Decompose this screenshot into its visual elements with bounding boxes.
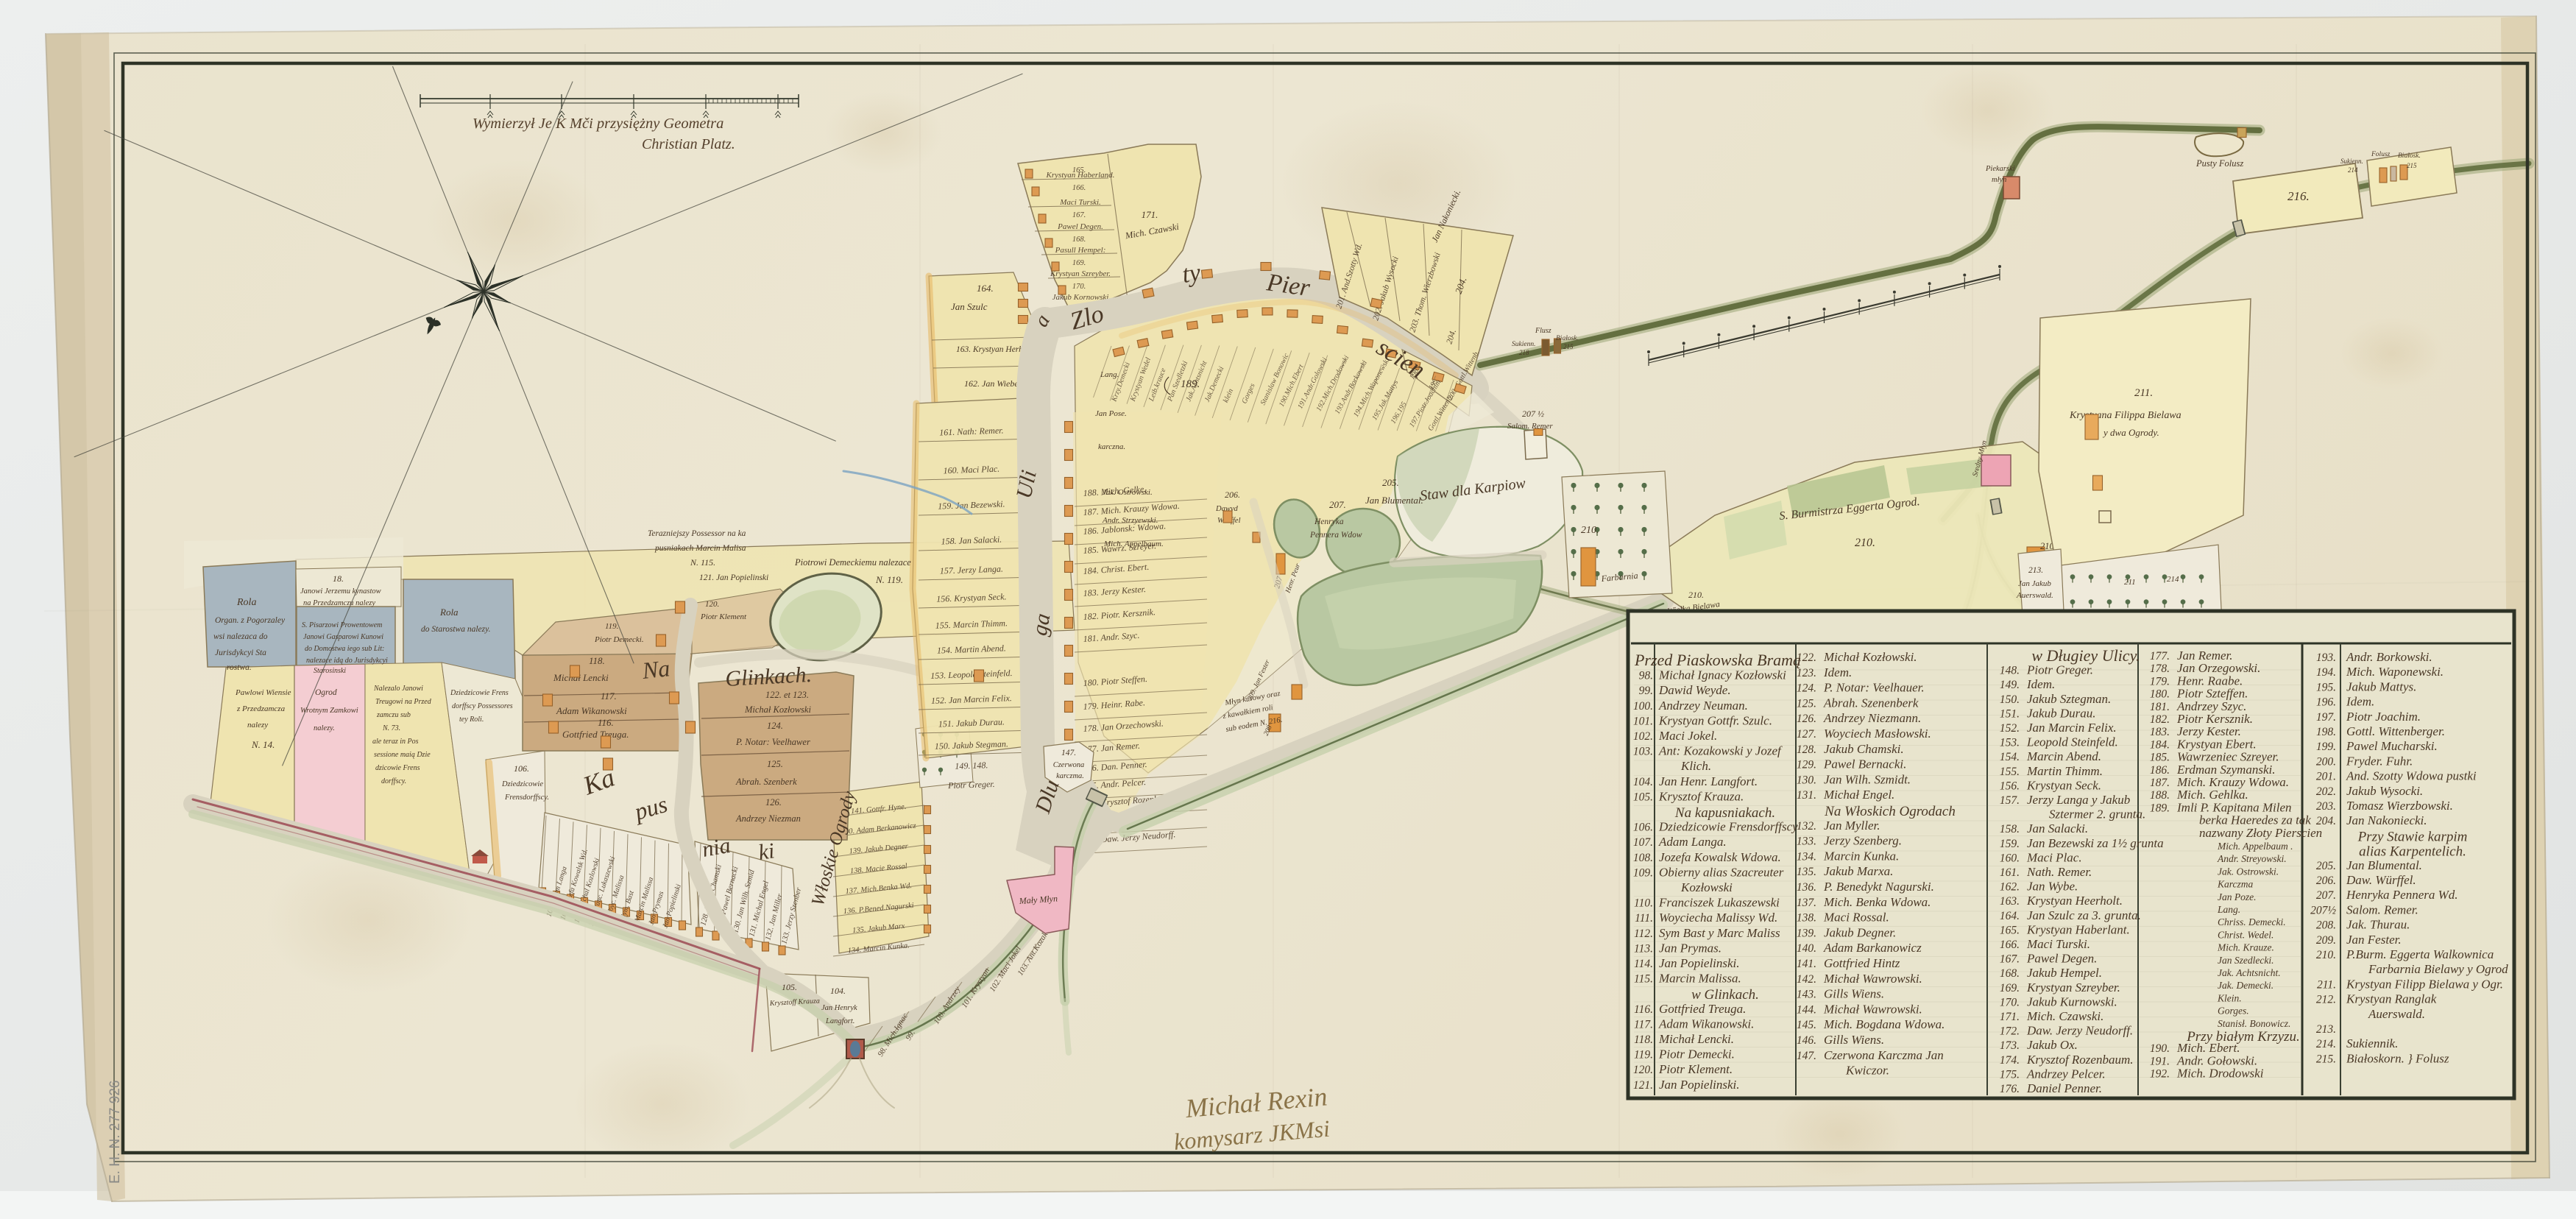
svg-text:N. 14.: N. 14. [251,739,275,750]
svg-text:Michał Kozłowski.: Michał Kozłowski. [1823,650,1917,664]
svg-text:211.: 211. [2317,978,2336,991]
svg-text:125.: 125. [767,759,783,769]
svg-text:Pasull Hempel:: Pasull Hempel: [1055,246,1106,255]
svg-text:Terazniejszy Possessor na ka: Terazniejszy Possessor na ka [648,529,746,538]
svg-text:Idem.: Idem. [2026,677,2055,691]
svg-text:137.: 137. [1797,897,1816,909]
svg-text:Białosk.: Białosk. [2398,152,2421,160]
svg-text:98.: 98. [1639,670,1653,682]
svg-text:200.: 200. [2316,755,2336,768]
svg-text:Jakub Hempel.: Jakub Hempel. [2027,966,2102,980]
svg-text:P. Benedykt Nagurski.: P. Benedykt Nagurski. [1823,880,1934,894]
svg-text:129.: 129. [1797,759,1816,771]
svg-text:136.: 136. [1797,881,1816,894]
svg-text:Wymierzył Je K Mči przysiężny: Wymierzył Je K Mči przysiężny Geometra [473,116,723,132]
svg-text:154.: 154. [2000,751,2020,763]
svg-text:123.: 123. [1797,667,1816,679]
svg-text:146.: 146. [1797,1034,1816,1047]
svg-text:Henr. Raabe.: Henr. Raabe. [2176,674,2243,688]
svg-text:153.: 153. [2000,737,2020,749]
svg-text:Sukienn.: Sukienn. [1512,341,1535,348]
svg-text:218: 218 [1519,349,1529,356]
svg-text:Marcin Abend.: Marcin Abend. [2026,749,2101,763]
svg-text:Dziedzicowie Frens: Dziedzicowie Frens [450,689,509,697]
svg-text:Mich. Gehlka.: Mich. Gehlka. [2176,788,2248,802]
svg-text:Jan Bezewski za 1½ grunta: Jan Bezewski za 1½ grunta [2027,836,2164,850]
svg-text:118.: 118. [1634,1033,1653,1046]
svg-text:Tomasz Wierzbowski.: Tomasz Wierzbowski. [2346,799,2453,813]
svg-text:Sztermer 2. grunta.: Sztermer 2. grunta. [2049,808,2145,821]
svg-text:205.: 205. [2316,860,2336,872]
svg-text:198.: 198. [2316,726,2336,738]
svg-text:104.: 104. [1633,776,1653,788]
svg-text:Maci Rossal.: Maci Rossal. [1823,911,1889,925]
svg-text:Jan Szedlecki.: Jan Szedlecki. [2218,955,2274,966]
svg-text:Jan Fester.: Jan Fester. [2346,933,2402,947]
svg-text:206.: 206. [2316,875,2336,887]
svg-text:Michał Lencki: Michał Lencki [553,672,609,683]
svg-text:Kwiczor.: Kwiczor. [1845,1064,1889,1078]
svg-text:Gills Wiens.: Gills Wiens. [1824,1033,1884,1047]
svg-text:155.: 155. [2000,766,2020,778]
svg-text:160.: 160. [2000,852,2020,864]
svg-text:Flusz: Flusz [1535,327,1551,335]
svg-text:Jan Wybe.: Jan Wybe. [2027,880,2078,894]
svg-text:106.: 106. [514,763,529,774]
svg-text:dorffscy.: dorffscy. [381,777,406,785]
svg-text:Erdman Szymanski.: Erdman Szymanski. [2176,763,2275,777]
svg-text:Andrzey Pelcer.: Andrzey Pelcer. [2026,1067,2106,1081]
svg-text:201.: 201. [2316,771,2336,783]
svg-text:Piotr Greger.: Piotr Greger. [947,779,995,791]
svg-text:169.: 169. [2000,982,2020,994]
svg-text:188.: 188. [2150,789,2170,802]
svg-text:Mich. Drodowski: Mich. Drodowski [2176,1067,2264,1081]
svg-text:Michał Wawrowski.: Michał Wawrowski. [1823,972,1922,986]
svg-text:215: 215 [2407,162,2417,169]
svg-text:157.: 157. [2000,794,2020,807]
svg-text:nalezy.: nalezy. [314,724,335,732]
svg-text:Michał Engel.: Michał Engel. [1823,788,1894,802]
svg-text:157. Jerzy Langa.: 157. Jerzy Langa. [940,564,1003,576]
svg-text:Mich. Krauze.: Mich. Krauze. [2217,942,2274,953]
svg-text:Pawel Mucharski.: Pawel Mucharski. [2346,739,2438,753]
svg-text:nia: nia [700,833,732,862]
svg-text:151.: 151. [2000,707,2020,720]
svg-text:126.: 126. [1797,713,1816,725]
svg-text:Andr. Gołowski.: Andr. Gołowski. [2176,1053,2257,1067]
svg-text:Treugowi na Przed: Treugowi na Przed [375,698,432,706]
svg-text:119.: 119. [605,622,618,631]
svg-text:121.: 121. [1633,1079,1653,1092]
svg-text:N. 119.: N. 119. [875,574,903,585]
svg-text:144.: 144. [1797,1003,1816,1016]
svg-text:Starosinski: Starosinski [314,667,346,675]
svg-text:102.: 102. [1633,730,1653,743]
svg-text:Na kapusniakach.: Na kapusniakach. [1674,805,1775,821]
svg-text:Piotr Greger.: Piotr Greger. [2026,663,2093,677]
svg-text:172.: 172. [2000,1025,2020,1038]
svg-text:Idem.: Idem. [2346,695,2374,709]
svg-text:Michał Lencki.: Michał Lencki. [1658,1032,1734,1046]
svg-text:Jan Prymas.: Jan Prymas. [1659,941,1722,955]
svg-text:Sym Bast y Marc Maliss: Sym Bast y Marc Maliss [1659,926,1780,940]
svg-text:159.: 159. [2000,838,2020,850]
svg-text:karczna.: karczna. [1098,442,1125,451]
svg-text:Jan Popielinski.: Jan Popielinski. [1659,956,1740,970]
svg-text:Gorges.: Gorges. [2218,1006,2249,1017]
svg-text:Jan Myller.: Jan Myller. [1824,819,1880,833]
svg-text:208.: 208. [2316,919,2336,932]
svg-text:do Domostwa iego sub Lit:: do Domostwa iego sub Lit: [305,645,384,653]
svg-text:213.: 213. [2316,1023,2336,1036]
svg-text:Andr. Borkowski.: Andr. Borkowski. [2346,650,2432,664]
svg-text:Piotr Klement: Piotr Klement [700,612,747,621]
svg-text:Dziedzicowie Frensdorffscy: Dziedzicowie Frensdorffscy [1658,820,1798,834]
svg-text:ki: ki [757,838,776,865]
svg-text:164.: 164. [2000,910,2020,922]
svg-text:Glinkach.: Glinkach. [725,662,813,691]
svg-text:179.: 179. [2150,675,2170,688]
svg-text:205.: 205. [1382,477,1399,488]
svg-text:Przed Piaskowska Bramą: Przed Piaskowska Bramą [1634,651,1801,669]
svg-text:207.: 207. [1329,499,1346,510]
svg-text:197.: 197. [2316,711,2336,724]
svg-text:Jurisdykcyi Sta: Jurisdykcyi Sta [215,649,266,657]
svg-text:Salom. Remer: Salom. Remer [1507,422,1553,431]
svg-text:Piotr Demecki.: Piotr Demecki. [1658,1047,1735,1061]
svg-text:Piotr Joachim.: Piotr Joachim. [2346,710,2421,724]
svg-text:142.: 142. [1797,973,1816,986]
svg-text:Mich. Krauzy Wdowa.: Mich. Krauzy Wdowa. [2176,775,2289,789]
svg-text:Mich. Bogdana Wdowa.: Mich. Bogdana Wdowa. [1823,1017,1945,1031]
svg-text:pusniakach Marcin Malisa: pusniakach Marcin Malisa [654,544,746,553]
svg-text:y dwa Ogrody.: y dwa Ogrody. [2102,427,2159,438]
svg-text:160. Maci Plac.: 160. Maci Plac. [943,464,999,476]
svg-text:Frensdorffscy.: Frensdorffscy. [504,794,549,802]
svg-text:158.: 158. [2000,823,2020,835]
svg-text:Fryder. Fuhr.: Fryder. Fuhr. [2346,754,2413,768]
svg-text:Jan Pose.: Jan Pose. [1095,409,1127,418]
svg-text:210.: 210. [1855,537,1875,549]
svg-text:213.: 213. [2028,566,2043,575]
svg-text:Andr. Streyowski.: Andr. Streyowski. [2217,853,2287,864]
svg-text:121. Jan Popielinski: 121. Jan Popielinski [699,573,768,582]
svg-text:Mich. Benka Wdowa.: Mich. Benka Wdowa. [1823,895,1931,909]
svg-text:210.: 210. [1581,525,1599,536]
svg-text:Salom. Remer.: Salom. Remer. [2346,902,2418,916]
svg-text:Jan Orzegowski.: Jan Orzegowski. [2177,661,2260,675]
svg-text:149.: 149. [2000,679,2020,691]
svg-text:P. Notar: Veelhauer.: P. Notar: Veelhauer. [1823,681,1925,695]
svg-text:131.: 131. [1797,789,1816,802]
svg-text:Jerzy Szenberg.: Jerzy Szenberg. [1824,834,1902,848]
svg-text:E. H. N. 277 926: E. H. N. 277 926 [107,1081,123,1184]
svg-text:103.: 103. [1633,746,1653,758]
svg-text:119.: 119. [1634,1049,1653,1061]
svg-text:Kozłowski: Kozłowski [1680,880,1733,894]
svg-text:108.: 108. [1633,852,1653,864]
svg-text:Jan Szulc za 3. grunta.: Jan Szulc za 3. grunta. [2027,908,2141,922]
svg-text:199.: 199. [2316,741,2336,753]
svg-text:Ogrod: Ogrod [315,688,337,697]
svg-text:112.: 112. [1634,928,1653,940]
svg-text:111.: 111. [1635,912,1653,925]
svg-text:dzicowie Frens: dzicowie Frens [375,764,420,772]
svg-text:Rola: Rola [439,607,459,618]
svg-text:Jan Salacki.: Jan Salacki. [2027,821,2088,835]
svg-text:Krystyan Heerholt.: Krystyan Heerholt. [2026,894,2123,908]
svg-text:Sukienn.: Sukienn. [2340,158,2363,165]
svg-text:124.: 124. [767,721,783,731]
svg-text:Nalezalo Janowi: Nalezalo Janowi [373,685,423,693]
svg-text:Jak. Ostrowski.: Jak. Ostrowski. [2218,866,2279,877]
svg-text:Jan Nakoniecki.: Jan Nakoniecki. [2346,813,2427,827]
svg-text:168.: 168. [2000,967,2020,980]
svg-text:Krysztof Krauza.: Krysztof Krauza. [1658,789,1744,803]
svg-text:do Starostwa nalezy.: do Starostwa nalezy. [421,625,490,634]
svg-text:216.: 216. [2287,189,2310,203]
svg-text:Jakub Wysocki.: Jakub Wysocki. [2346,784,2423,798]
svg-text:163.: 163. [2000,895,2020,908]
svg-text:karczma.: karczma. [1056,772,1084,780]
svg-text:211: 211 [2124,578,2136,587]
svg-text:128.: 128. [1797,743,1816,756]
svg-text:207.: 207. [2316,889,2336,902]
svg-text:Jan Henr. Langfort.: Jan Henr. Langfort. [1659,774,1758,788]
svg-text:105.: 105. [1633,791,1653,803]
svg-text:215.: 215. [2316,1053,2336,1065]
svg-text:Jerzy Kester.: Jerzy Kester. [2177,724,2241,738]
svg-text:110.: 110. [1634,897,1653,910]
svg-text:Białoskorn. } Folusz: Białoskorn. } Folusz [2346,1051,2449,1065]
svg-text:206.: 206. [1225,490,1240,500]
svg-text:105.: 105. [782,982,797,992]
svg-text:192.: 192. [2150,1068,2170,1081]
svg-text:Jan Blumental.: Jan Blumental. [1365,495,1423,506]
svg-text:Jak. Thurau.: Jak. Thurau. [2346,918,2410,932]
svg-text:Jan Remer.: Jan Remer. [2177,649,2233,662]
svg-text:134.: 134. [1797,850,1816,863]
svg-text:Mich. Appelbaum.: Mich. Appelbaum. [1103,540,1164,548]
svg-text:Jak. Demecki.: Jak. Demecki. [2218,980,2274,991]
svg-text:143.: 143. [1797,989,1816,1001]
svg-text:Jan Popielinski.: Jan Popielinski. [1659,1078,1740,1092]
svg-text:Obierny alias Szacreuter: Obierny alias Szacreuter [1659,865,1784,879]
svg-text:nalezace idą do Jurisdykcyi: nalezace idą do Jurisdykcyi [306,657,388,665]
svg-text:Abrah. Szenberk: Abrah. Szenberk [735,777,797,787]
svg-text:Janowi Gasparowi Kunowi: Janowi Gasparowi Kunowi [303,633,383,641]
svg-text:Karczma: Karczma [2217,879,2254,890]
svg-text:Daw. Würffel.: Daw. Würffel. [2346,873,2416,887]
svg-text:210.: 210. [2316,949,2336,961]
svg-text:Piotr Demecki.: Piotr Demecki. [594,635,644,644]
svg-text:Ant: Kozakowski y Jozef: Ant: Kozakowski y Jozef [1658,744,1783,758]
svg-text:Gottfried Hintz: Gottfried Hintz [1824,956,1900,970]
svg-text:Mich. Ebert.: Mich. Ebert. [2176,1041,2240,1055]
svg-text:214: 214 [2167,575,2179,584]
svg-text:wsi nalezaca do: wsi nalezaca do [213,632,268,641]
svg-text:Pawlowi Wiensie: Pawlowi Wiensie [235,688,291,697]
svg-text:Daw. Jerzy Neudorff.: Daw. Jerzy Neudorff. [2026,1024,2133,1038]
svg-text:Marcin Kunka.: Marcin Kunka. [1823,849,1899,863]
svg-text:nazwany Złoty Pierscien: nazwany Złoty Pierscien [2199,826,2322,840]
svg-text:Andrzey Szyc.: Andrzey Szyc. [2176,699,2246,713]
svg-text:Białosk.: Białosk. [1556,335,1579,342]
svg-text:Janowi Jerzemu kynastow: Janowi Jerzemu kynastow [300,587,381,596]
svg-text:193.: 193. [2316,651,2336,664]
svg-text:Pennera Wdow: Pennera Wdow [1309,531,1362,540]
svg-text:Krysztof Rozenbaum.: Krysztof Rozenbaum. [2026,1053,2134,1067]
svg-text:Dziedzicowie: Dziedzicowie [501,780,543,788]
svg-text:215: 215 [1563,343,1574,350]
svg-text:Sukiennik.: Sukiennik. [2346,1036,2398,1050]
svg-text:Pawel Bernacki.: Pawel Bernacki. [1823,757,1906,771]
svg-text:147.: 147. [1797,1050,1816,1062]
svg-text:Jakub Mattys.: Jakub Mattys. [2346,679,2416,693]
svg-text:Jakub Marxa.: Jakub Marxa. [1824,864,1893,878]
svg-text:Leopold Steinfeld.: Leopold Steinfeld. [2026,735,2118,749]
svg-text:181.: 181. [2150,701,2170,713]
svg-text:207½: 207½ [2310,904,2336,916]
svg-text:150.: 150. [2000,693,2020,706]
svg-text:Langfort.: Langfort. [825,1017,854,1025]
svg-text:Krystyan Haberlant.: Krystyan Haberlant. [2026,922,2130,936]
svg-text:Jakub Ox.: Jakub Ox. [2027,1038,2078,1052]
svg-text:rostwa.: rostwa. [227,663,252,672]
svg-text:101.: 101. [1633,715,1653,727]
svg-text:Maci Plac.: Maci Plac. [2026,850,2082,864]
svg-text:186.: 186. [2150,764,2170,777]
svg-text:Przy Stawie karpim: Przy Stawie karpim [2357,829,2468,844]
svg-text:170.: 170. [1072,283,1086,291]
svg-text:Krystyan Haberland.: Krystyan Haberland. [1046,171,1115,180]
svg-text:162. Jan Wiebe.: 162. Jan Wiebe. [964,378,1021,389]
svg-text:Andr. Strzyewski.: Andr. Strzyewski. [1102,516,1158,525]
svg-text:182.: 182. [2150,713,2170,726]
svg-text:169.: 169. [1072,259,1086,267]
svg-text:122. et 123.: 122. et 123. [765,690,809,700]
svg-text:berka Haeredes za tak: berka Haeredes za tak [2199,813,2311,827]
svg-text:Krystyan Filipp Bielawa y Ogr.: Krystyan Filipp Bielawa y Ogr. [2346,977,2503,991]
svg-text:Adam Wikanowski.: Adam Wikanowski. [1658,1017,1754,1031]
svg-text:Krystyan Szreyber.: Krystyan Szreyber. [2026,981,2120,994]
svg-text:Gottl. Wittenberger.: Gottl. Wittenberger. [2346,724,2445,738]
svg-text:Woyciecha Malissy Wd.: Woyciecha Malissy Wd. [1659,911,1777,925]
svg-text:171.: 171. [1142,209,1158,220]
svg-text:211.: 211. [2134,387,2153,399]
svg-text:162.: 162. [2000,881,2020,894]
svg-text:Christ. Wedel.: Christ. Wedel. [2218,929,2274,940]
svg-text:204.: 204. [2316,815,2336,827]
svg-text:Klein.: Klein. [2217,992,2242,1003]
svg-text:Farbarnia Bielawy y Ogrod: Farbarnia Bielawy y Ogrod [2368,962,2508,976]
svg-text:And. Szotty Wdowa pustki: And. Szotty Wdowa pustki [2346,769,2477,783]
svg-text:106.: 106. [1633,821,1653,834]
svg-text:132.: 132. [1797,820,1816,833]
svg-text:120.: 120. [1633,1064,1653,1076]
svg-text:161.: 161. [2000,866,2020,879]
svg-text:Jakub Durau.: Jakub Durau. [2027,706,2095,720]
svg-text:Wrotnym Zamkowi: Wrotnym Zamkowi [300,707,358,715]
svg-text:w Glinkach.: w Glinkach. [1691,987,1759,1003]
svg-text:Piotr Szteffen.: Piotr Szteffen. [2176,687,2248,701]
svg-text:Michał Ignacy Kozłowski: Michał Ignacy Kozłowski [1658,668,1786,682]
svg-text:Na: Na [640,654,671,684]
svg-text:116.: 116. [598,717,614,728]
svg-text:Krystyan Ebert.: Krystyan Ebert. [2176,737,2257,751]
svg-text:107.: 107. [1633,836,1653,849]
svg-text:170.: 170. [2000,996,2020,1008]
svg-text:Adam Barkanowicz: Adam Barkanowicz [1823,941,1922,955]
svg-text:207 ½: 207 ½ [1522,409,1544,419]
svg-text:Maci Turski.: Maci Turski. [1059,198,1101,207]
svg-text:Gottfried Treuga.: Gottfried Treuga. [562,729,629,740]
svg-text:Klich.: Klich. [1680,759,1711,773]
svg-text:Czerwona: Czerwona [1053,761,1085,769]
svg-text:Jan Blumental.: Jan Blumental. [2346,858,2422,872]
svg-text:109.: 109. [1633,866,1653,879]
svg-text:Henryka Pennera Wd.: Henryka Pennera Wd. [2346,888,2458,902]
svg-text:na Przedzamczu nalezy: na Przedzamczu nalezy [303,599,375,607]
svg-text:183.: 183. [2150,726,2170,738]
svg-text:ga: ga [1027,612,1055,637]
svg-text:P.Burm. Eggerta Walkownica: P.Burm. Eggerta Walkownica [2346,947,2494,961]
svg-text:Folusz: Folusz [2371,151,2391,158]
svg-text:167.: 167. [1072,211,1086,219]
svg-text:Chriss. Demecki.: Chriss. Demecki. [2218,916,2286,928]
svg-text:Imli P. Kapitana Milen: Imli P. Kapitana Milen [2176,800,2292,814]
svg-text:184.: 184. [2150,738,2170,751]
svg-text:189.: 189. [1181,378,1200,390]
svg-text:139.: 139. [1797,927,1816,939]
svg-text:176.: 176. [2000,1083,2020,1095]
svg-text:Piotrowi Demeckiemu nalezace: Piotrowi Demeckiemu nalezace [794,557,911,568]
svg-text:175.: 175. [2000,1068,2020,1081]
svg-text:126.: 126. [765,797,782,808]
svg-text:190.: 190. [2150,1042,2170,1055]
svg-text:116.: 116. [1634,1003,1653,1016]
svg-text:99.: 99. [1639,685,1653,697]
svg-text:Andrzey Neuman.: Andrzey Neuman. [1658,699,1748,713]
svg-text:203.: 203. [2316,800,2336,813]
svg-text:Lang.: Lang. [2217,904,2240,915]
svg-text:138.: 138. [1797,912,1816,925]
svg-text:sessione maią Dzie: sessione maią Dzie [374,751,431,759]
svg-text:113.: 113. [1634,942,1653,955]
svg-text:Jozefa Kowalsk Wdowa.: Jozefa Kowalsk Wdowa. [1659,850,1781,864]
svg-text:Krystyan Ranglak: Krystyan Ranglak [2346,992,2437,1006]
svg-text:Franciszek Lukaszewski: Franciszek Lukaszewski [1658,896,1780,910]
svg-text:166.: 166. [2000,939,2020,951]
svg-text:Jan Szulc: Jan Szulc [951,301,988,312]
svg-text:ale teraz in Pos: ale teraz in Pos [372,738,419,746]
svg-text:148.: 148. [2000,665,2020,677]
svg-text:212.: 212. [2316,994,2336,1006]
svg-text:187.: 187. [2150,777,2170,789]
svg-text:214.: 214. [2316,1038,2336,1050]
svg-text:Pawel Degen.: Pawel Degen. [1057,222,1103,231]
svg-text:Gottfried Treuga.: Gottfried Treuga. [1659,1002,1746,1016]
svg-text:Jan Jakub: Jan Jakub [2018,579,2051,588]
svg-text:Martin Thimm.: Martin Thimm. [2026,764,2103,778]
svg-text:Jak. Achtsnicht.: Jak. Achtsnicht. [2218,967,2281,978]
svg-text:Mich. Waponewski.: Mich. Waponewski. [2346,665,2444,679]
svg-text:Maci Turski.: Maci Turski. [2026,937,2090,951]
svg-text:149. 148.: 149. 148. [955,760,988,771]
svg-text:214: 214 [2348,166,2358,174]
svg-text:Auerswald.: Auerswald. [2368,1007,2425,1021]
